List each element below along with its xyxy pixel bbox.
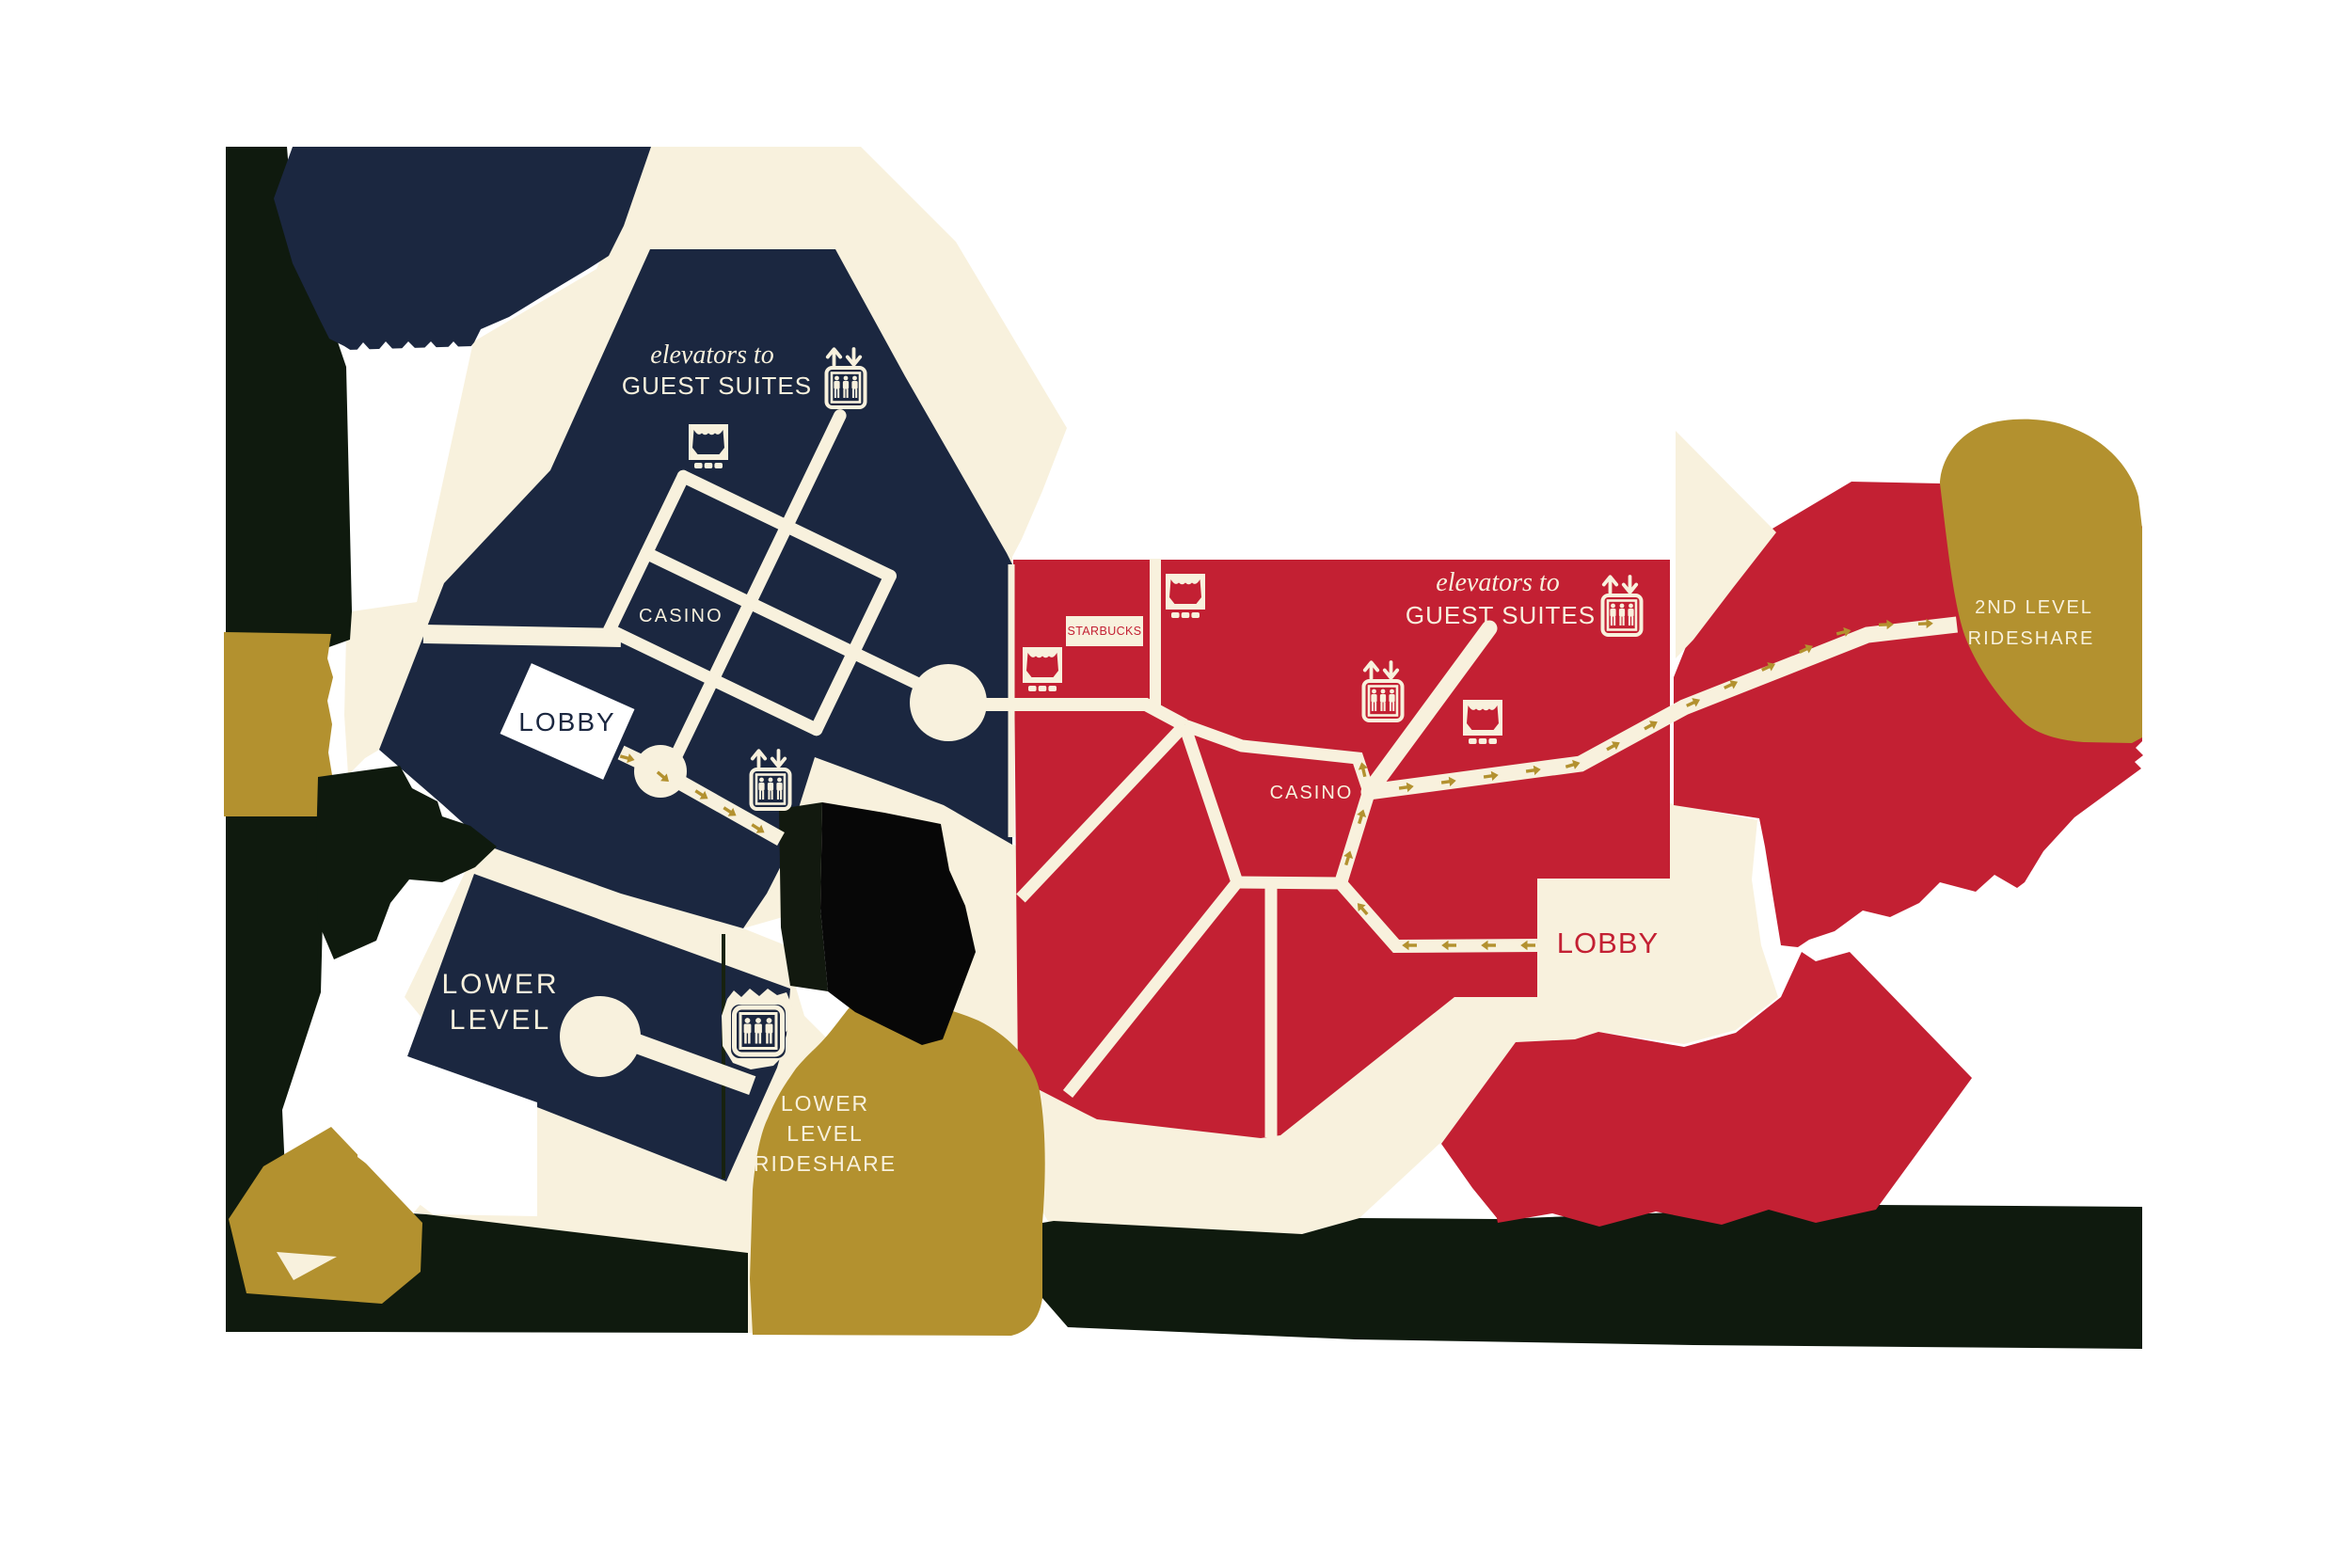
svg-text:LEVEL: LEVEL: [787, 1121, 864, 1146]
svg-text:elevators to: elevators to: [650, 341, 773, 370]
svg-text:STARBUCKS: STARBUCKS: [1067, 625, 1141, 638]
svg-text:LEVEL: LEVEL: [450, 1005, 551, 1036]
svg-text:elevators to: elevators to: [1436, 568, 1559, 597]
svg-text:GUEST SUITES: GUEST SUITES: [622, 372, 812, 400]
svg-text:LOBBY: LOBBY: [1557, 927, 1659, 959]
svg-text:RIDESHARE: RIDESHARE: [754, 1151, 897, 1176]
svg-text:LOWER: LOWER: [781, 1091, 869, 1116]
svg-text:GUEST SUITES: GUEST SUITES: [1406, 601, 1596, 629]
svg-text:RIDESHARE: RIDESHARE: [1968, 628, 2095, 649]
svg-text:LOWER: LOWER: [441, 969, 559, 1000]
svg-text:2ND LEVEL: 2ND LEVEL: [1975, 597, 2093, 618]
svg-text:CASINO: CASINO: [1270, 783, 1354, 803]
svg-text:LOBBY: LOBBY: [518, 707, 615, 736]
svg-text:CASINO: CASINO: [639, 606, 723, 626]
